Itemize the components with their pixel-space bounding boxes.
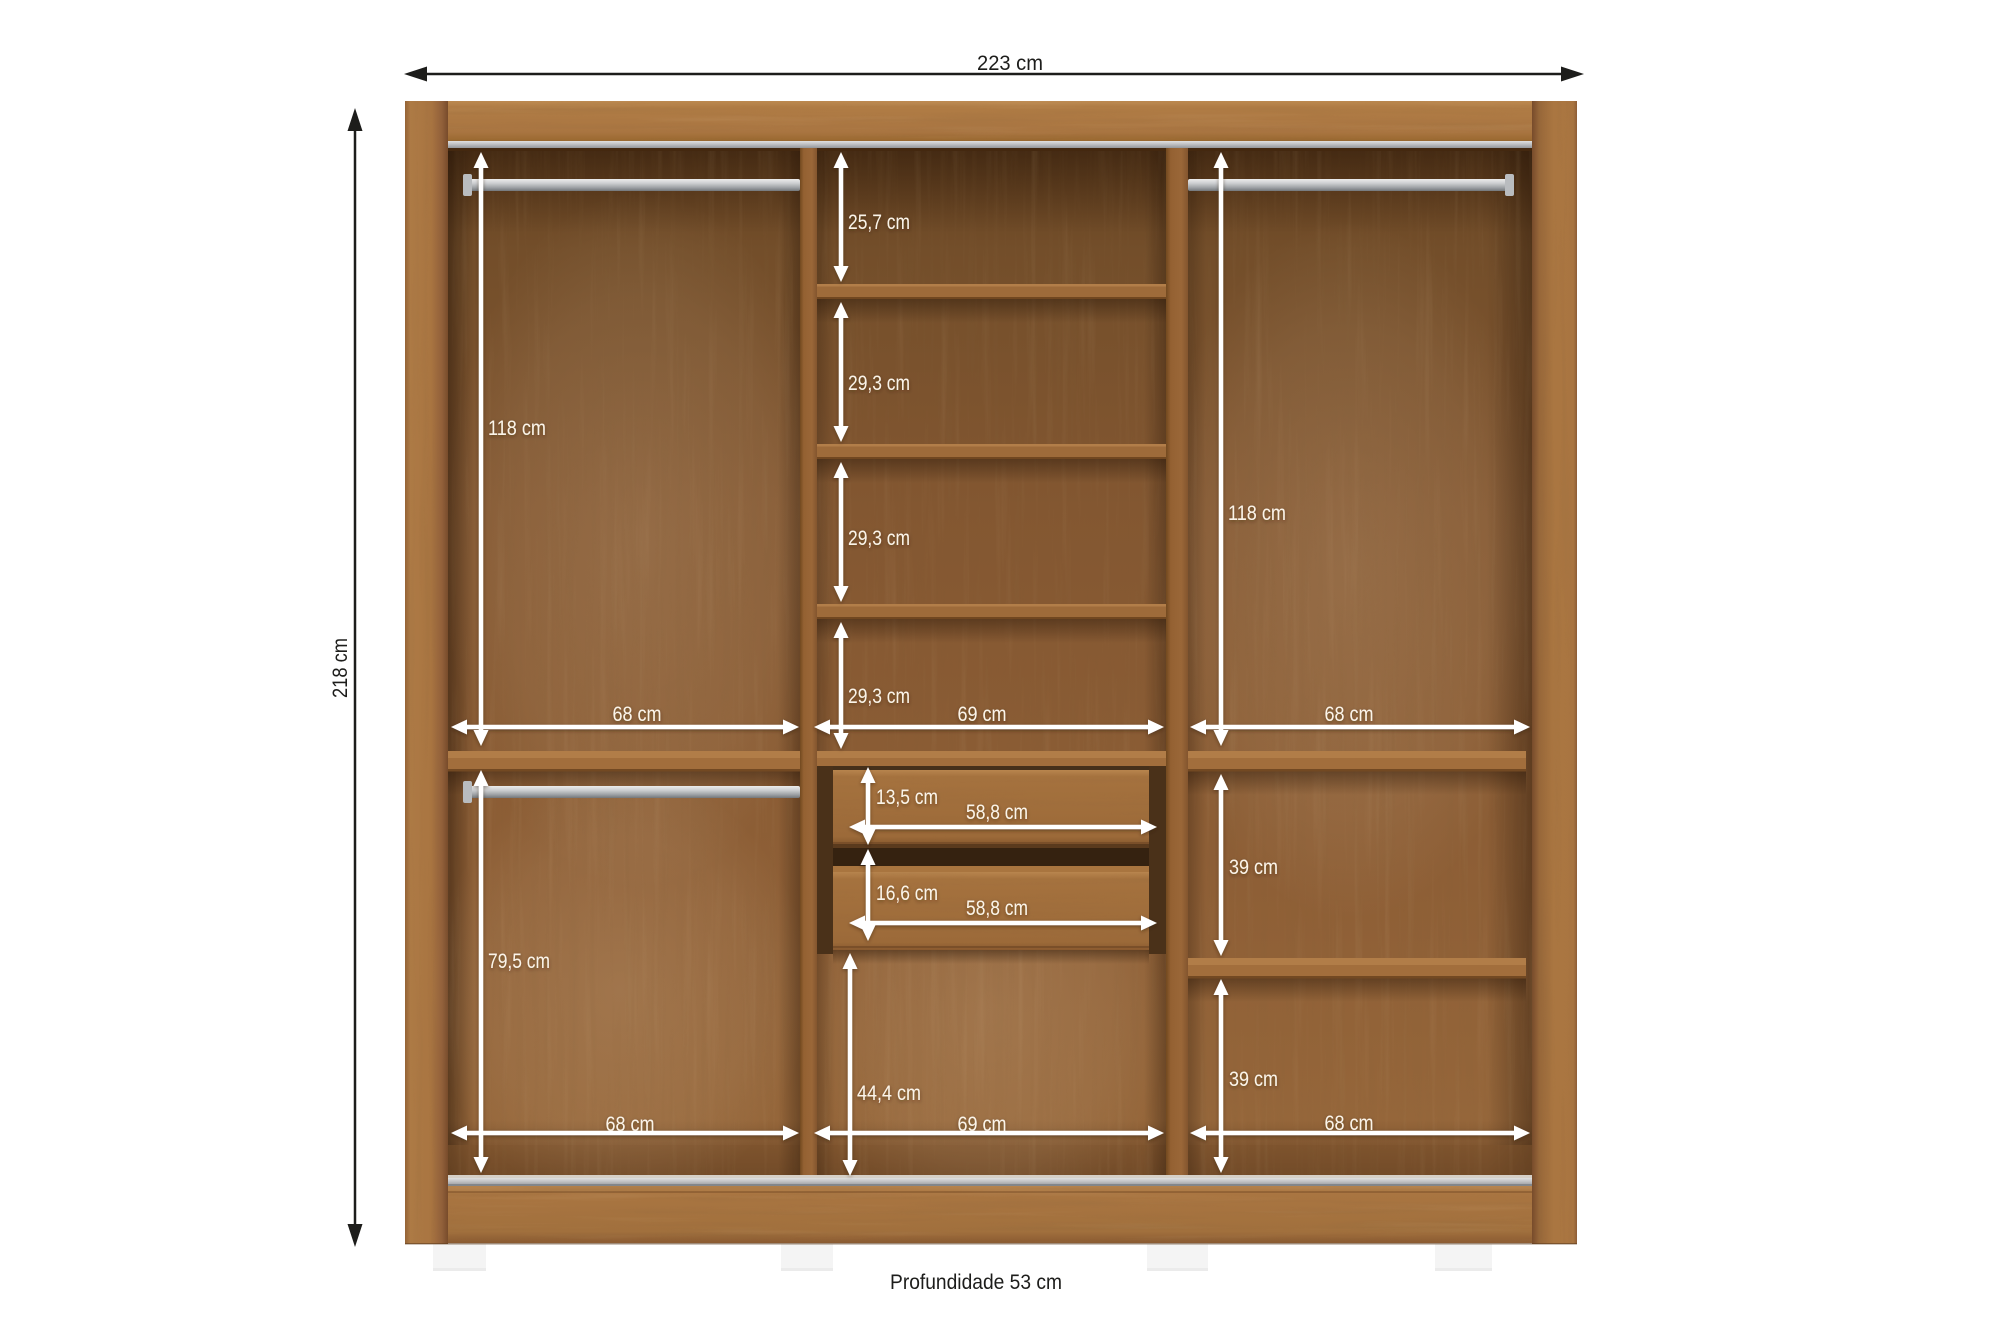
svg-text:118 cm: 118 cm	[1228, 502, 1286, 525]
svg-text:68 cm: 68 cm	[613, 703, 662, 726]
svg-text:69 cm: 69 cm	[958, 1113, 1007, 1136]
svg-text:68 cm: 68 cm	[1325, 703, 1374, 726]
svg-text:218 cm: 218 cm	[329, 638, 352, 698]
svg-text:29,3 cm: 29,3 cm	[848, 372, 910, 395]
svg-text:16,6 cm: 16,6 cm	[876, 882, 938, 905]
svg-text:Profundidade 53 cm: Profundidade 53 cm	[890, 1271, 1062, 1294]
svg-text:44,4 cm: 44,4 cm	[857, 1082, 921, 1105]
svg-text:29,3 cm: 29,3 cm	[848, 527, 910, 550]
svg-text:79,5 cm: 79,5 cm	[488, 950, 550, 973]
svg-text:68 cm: 68 cm	[1325, 1112, 1374, 1135]
svg-text:118 cm: 118 cm	[488, 417, 546, 440]
svg-text:68 cm: 68 cm	[606, 1113, 655, 1136]
svg-text:39 cm: 39 cm	[1229, 1068, 1278, 1091]
svg-text:223 cm: 223 cm	[977, 52, 1043, 75]
svg-text:29,3 cm: 29,3 cm	[848, 685, 910, 708]
svg-text:69 cm: 69 cm	[958, 703, 1007, 726]
svg-text:58,8 cm: 58,8 cm	[966, 801, 1028, 824]
svg-text:39 cm: 39 cm	[1229, 856, 1278, 879]
svg-text:58,8 cm: 58,8 cm	[966, 897, 1028, 920]
svg-text:25,7 cm: 25,7 cm	[848, 211, 910, 234]
svg-text:13,5 cm: 13,5 cm	[876, 786, 938, 809]
